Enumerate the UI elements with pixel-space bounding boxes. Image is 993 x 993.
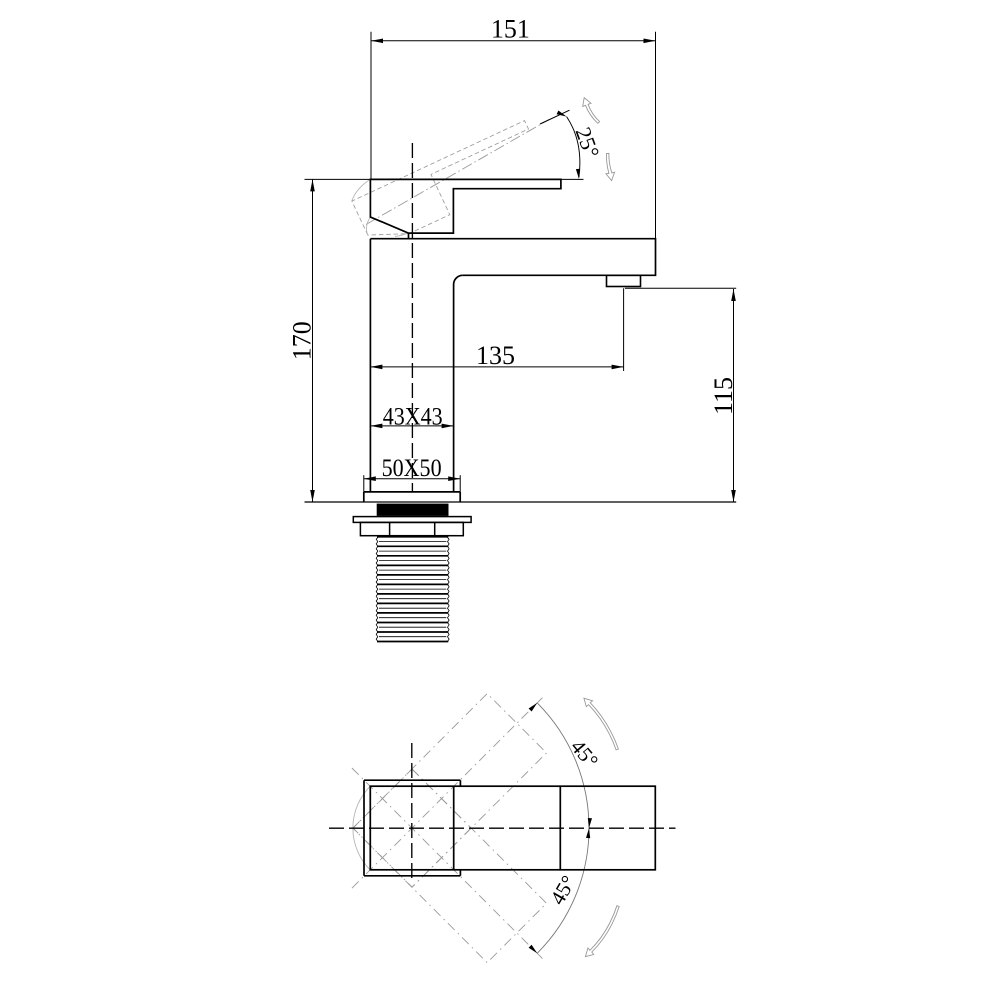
svg-text:151: 151 — [491, 15, 530, 44]
svg-text:50X50: 50X50 — [382, 455, 442, 482]
svg-text:135: 135 — [476, 341, 515, 370]
svg-text:170: 170 — [288, 321, 317, 360]
svg-text:115: 115 — [709, 377, 738, 415]
